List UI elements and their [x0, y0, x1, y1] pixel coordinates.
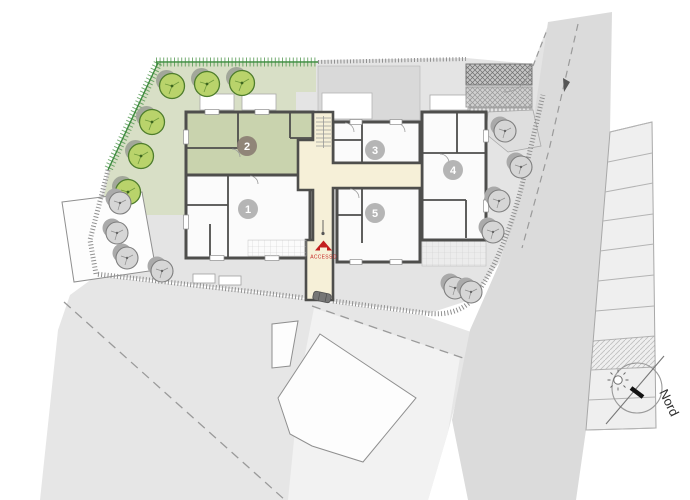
- apartment-3-number: 3: [372, 145, 378, 157]
- apartment-3-badge[interactable]: 3: [365, 140, 385, 160]
- site-plan-canvas: ACCESSO 1 2: [0, 0, 690, 500]
- apartment-5-unit[interactable]: [337, 188, 420, 262]
- apartment-2-badge[interactable]: 2: [237, 136, 257, 156]
- apartment-1-badge[interactable]: 1: [238, 199, 258, 219]
- inner-terrace: [248, 240, 306, 256]
- apartment-4-badge[interactable]: 4: [443, 160, 463, 180]
- apartment-5-badge[interactable]: 5: [365, 203, 385, 223]
- apartment-1-number: 1: [245, 204, 251, 216]
- balcony: [430, 95, 470, 110]
- north-label: Nord: [656, 387, 682, 419]
- planter: [193, 274, 215, 283]
- apartment-4-number: 4: [450, 165, 457, 177]
- planter: [219, 276, 241, 285]
- site-plan: ACCESSO 1 2: [0, 0, 690, 500]
- apartment-2-number: 2: [244, 141, 250, 153]
- access-label: ACCESSO: [310, 255, 337, 261]
- apartment-5-number: 5: [372, 208, 378, 220]
- balcony: [242, 94, 276, 110]
